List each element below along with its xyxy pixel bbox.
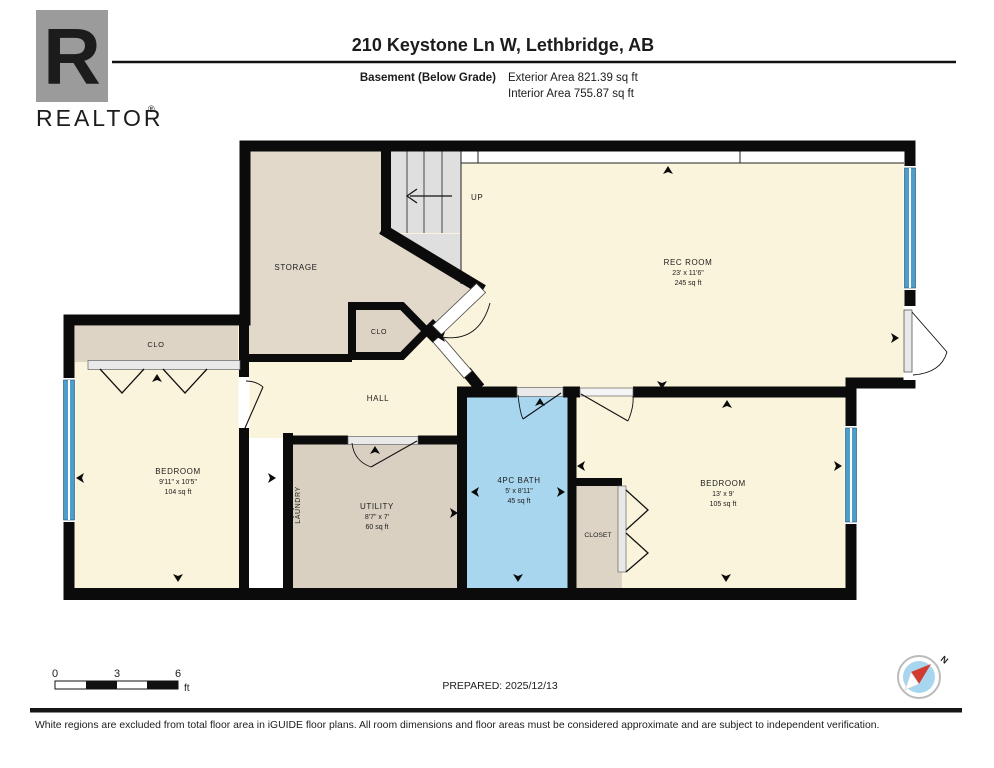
room-area-rec-room: 245 sq ft (675, 280, 702, 287)
room-area-utility: 60 sq ft (366, 524, 389, 531)
realtor-brand-text: REALTOR (36, 105, 164, 131)
scale-tick-6: 6 (175, 668, 181, 680)
excluded-strip (391, 152, 904, 164)
room-label-bedroom-right: BEDROOM (700, 479, 746, 488)
excluded-white-region (249, 438, 283, 590)
compass-north-label: N (939, 654, 950, 666)
room-label-clo-left: CLO (147, 340, 164, 349)
realtor-registered-mark: ® (148, 104, 155, 114)
window-bedroom-left (63, 378, 76, 522)
room-label-clo-hall: CLO (371, 329, 387, 336)
compass-icon: N (898, 654, 950, 698)
room-area-bedroom-right: 105 sq ft (710, 501, 737, 508)
room-label-hall: HALL (367, 394, 389, 403)
scale-tick-0: 0 (52, 668, 58, 680)
page-title: 210 Keystone Ln W, Lethbridge, AB (352, 35, 654, 55)
room-label-laundry: LAUNDRY (295, 486, 302, 524)
room-dims-bath: 5' x 8'11" (505, 488, 533, 495)
scale-tick-3: 3 (114, 668, 120, 680)
room-label-rec-room: REC ROOM (664, 258, 713, 267)
floor-fills (69, 146, 910, 594)
room-area-bath: 45 sq ft (508, 498, 531, 505)
interior-area-label: Interior Area 755.87 sq ft (508, 88, 635, 100)
room-label-storage: STORAGE (274, 263, 317, 272)
window-bedroom-right (845, 426, 858, 524)
window-rec-right (904, 166, 917, 290)
room-dims-rec-room: 23' x 11'6" (672, 270, 704, 277)
scale-unit: ft (184, 683, 190, 694)
room-dims-bedroom-left: 9'11" x 10'5" (159, 479, 197, 486)
exterior-door (904, 306, 948, 380)
exterior-area-label: Exterior Area 821.39 sq ft (508, 72, 639, 84)
stairs-flight (389, 151, 461, 233)
room-label-bath: 4PC BATH (497, 476, 540, 485)
floorplan-svg: R REALTOR ® 210 Keystone Ln W, Lethbridg… (0, 0, 994, 768)
realtor-logo-letter: R (43, 12, 101, 101)
room-label-closet: CLOSET (584, 532, 611, 539)
floorplan-sheet: R REALTOR ® 210 Keystone Ln W, Lethbridg… (0, 0, 994, 768)
realtor-logo: R REALTOR ® (36, 10, 164, 131)
room-label-utility: UTILITY (360, 502, 394, 511)
room-area-bedroom-left: 104 sq ft (165, 489, 192, 496)
room-dims-bedroom-right: 13' x 9' (712, 491, 734, 498)
footer-divider (30, 708, 962, 713)
floor-label: Basement (Below Grade) (360, 72, 496, 84)
prepared-date: PREPARED: 2025/12/13 (442, 680, 558, 692)
room-dims-utility: 8'7" x 7' (365, 514, 389, 521)
room-label-bedroom-left: BEDROOM (155, 467, 201, 476)
scale-bar: 0 3 6 ft (52, 668, 190, 694)
disclaimer-text: White regions are excluded from total fl… (35, 720, 879, 731)
stairs-up-label: UP (471, 193, 483, 202)
